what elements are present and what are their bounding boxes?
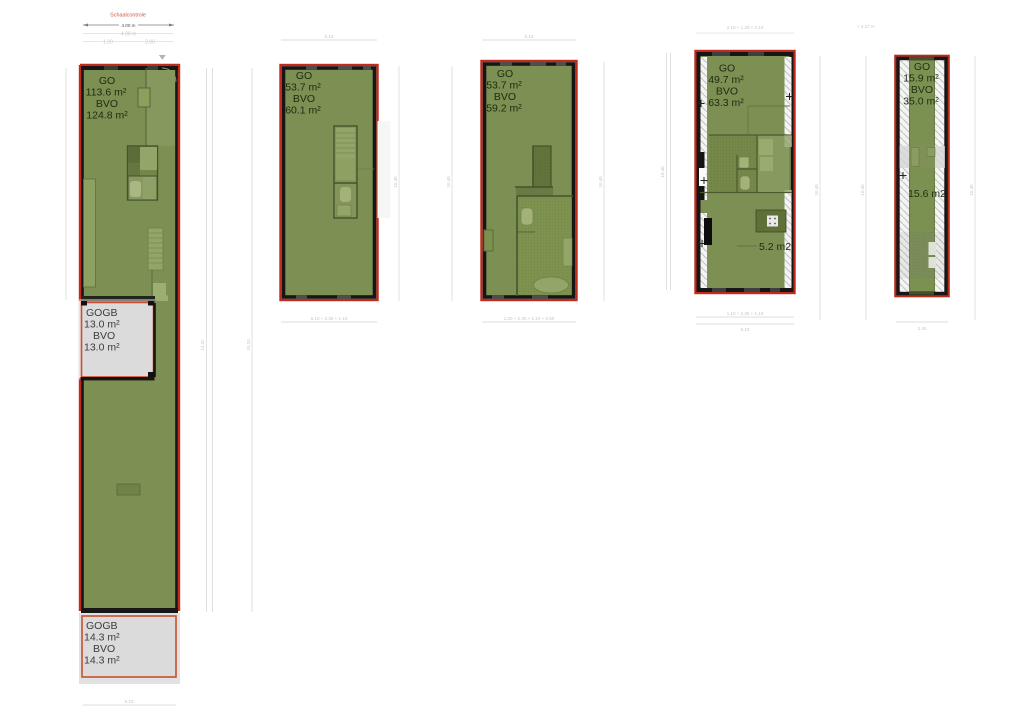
svg-text:10.40: 10.40 — [969, 184, 974, 196]
svg-text:53.7 m²: 53.7 m² — [285, 82, 321, 94]
svg-text:GOGB: GOGB — [86, 307, 118, 319]
svg-text:49.7 m²: 49.7 m² — [708, 74, 744, 86]
svg-text:BVO: BVO — [96, 98, 118, 110]
svg-text:10.40: 10.40 — [598, 176, 603, 188]
svg-text:4.00 m: 4.00 m — [121, 23, 135, 28]
svg-text:5.10: 5.10 — [325, 34, 334, 39]
svg-text:5.10 + 2.30 + 1.10: 5.10 + 2.30 + 1.10 — [311, 316, 348, 321]
svg-text:GO: GO — [719, 63, 735, 75]
svg-text:2.80: 2.80 — [145, 40, 155, 46]
svg-text:10.40: 10.40 — [446, 176, 451, 188]
svg-text:15.9 m²: 15.9 m² — [903, 73, 939, 85]
svg-text:35.0 m²: 35.0 m² — [903, 96, 939, 108]
svg-text:14.3 m²: 14.3 m² — [84, 655, 120, 667]
svg-text:BVO: BVO — [716, 86, 738, 98]
svg-text:5.2 m2: 5.2 m2 — [759, 241, 791, 253]
svg-text:4.00 m: 4.00 m — [121, 32, 136, 38]
svg-text:BVO: BVO — [93, 643, 115, 655]
svg-text:5.10: 5.10 — [525, 34, 534, 39]
svg-text:2.40: 2.40 — [918, 326, 927, 331]
svg-text:+ 2.27 m: + 2.27 m — [857, 24, 875, 29]
svg-text:1.20: 1.20 — [103, 40, 113, 46]
svg-text:13.0 m²: 13.0 m² — [84, 342, 120, 354]
svg-text:10.40: 10.40 — [660, 166, 665, 178]
svg-text:Schaalcontrole: Schaalcontrole — [110, 13, 146, 19]
svg-text:GO: GO — [99, 75, 115, 87]
svg-text:BVO: BVO — [911, 84, 933, 96]
svg-text:GO: GO — [914, 61, 930, 73]
svg-text:10.40: 10.40 — [860, 184, 865, 196]
svg-text:1.20 + 2.30 + 1.10 + 0.50: 1.20 + 2.30 + 1.10 + 0.50 — [504, 316, 555, 321]
svg-text:BVO: BVO — [494, 91, 516, 103]
svg-text:63.3 m²: 63.3 m² — [708, 97, 744, 109]
svg-text:2.10 + 1.20 + 2.10: 2.10 + 1.20 + 2.10 — [727, 25, 764, 30]
svg-text:53.7 m²: 53.7 m² — [486, 80, 522, 92]
svg-text:59.2 m²: 59.2 m² — [486, 103, 522, 115]
svg-text:113.6 m²: 113.6 m² — [86, 87, 127, 99]
svg-text:BVO: BVO — [293, 93, 315, 105]
svg-text:GO: GO — [296, 70, 312, 82]
svg-text:14.3 m²: 14.3 m² — [84, 632, 120, 644]
svg-text:14.32: 14.32 — [200, 339, 205, 351]
svg-text:1.10 + 2.30 + 1.10: 1.10 + 2.30 + 1.10 — [727, 311, 764, 316]
svg-text:5.10: 5.10 — [741, 327, 750, 332]
svg-text:GO: GO — [497, 68, 513, 80]
svg-text:GOGB: GOGB — [86, 620, 118, 632]
svg-text:5.10: 5.10 — [125, 699, 134, 704]
svg-text:10.40: 10.40 — [393, 176, 398, 188]
svg-text:BVO: BVO — [93, 330, 115, 342]
svg-text:124.8 m²: 124.8 m² — [86, 110, 128, 122]
svg-text:13.0 m²: 13.0 m² — [84, 319, 120, 331]
svg-text:15.6 m2: 15.6 m2 — [908, 188, 946, 200]
svg-text:10.40: 10.40 — [814, 184, 819, 196]
svg-text:60.1 m²: 60.1 m² — [285, 105, 321, 117]
svg-text:15.10: 15.10 — [246, 339, 251, 351]
